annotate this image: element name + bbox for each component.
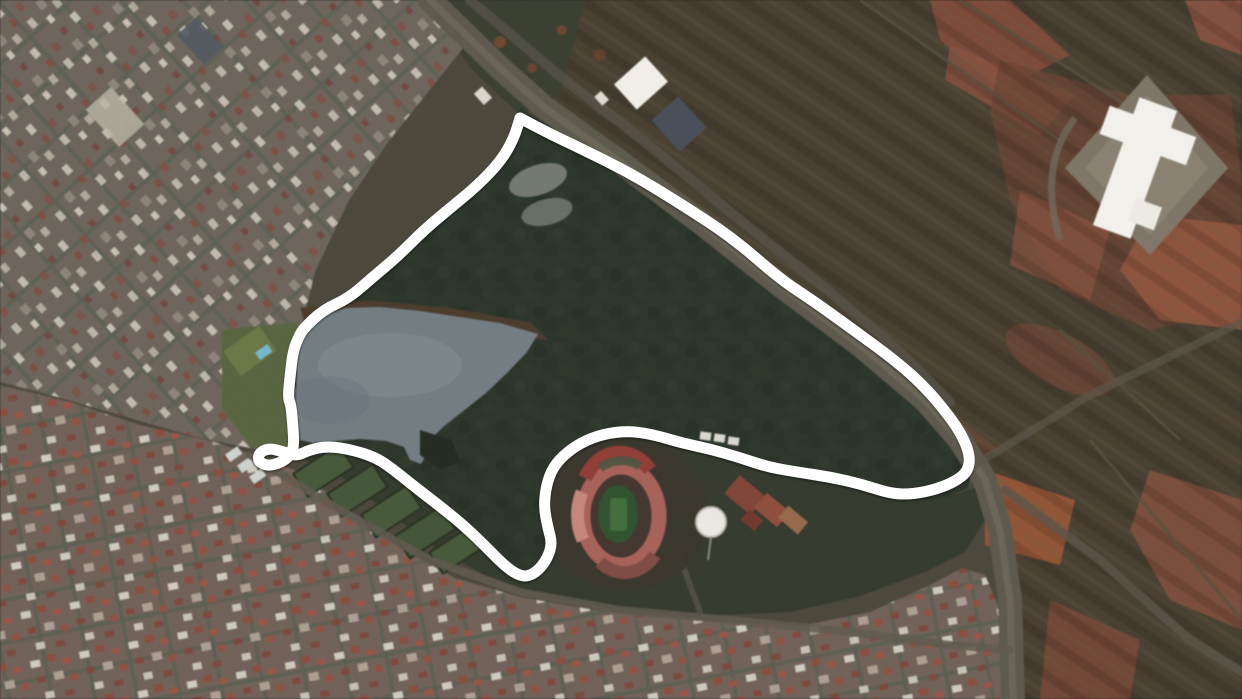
photo-grain bbox=[0, 0, 1242, 699]
satellite-map-screenshot bbox=[0, 0, 1242, 699]
satellite-map bbox=[0, 0, 1242, 699]
